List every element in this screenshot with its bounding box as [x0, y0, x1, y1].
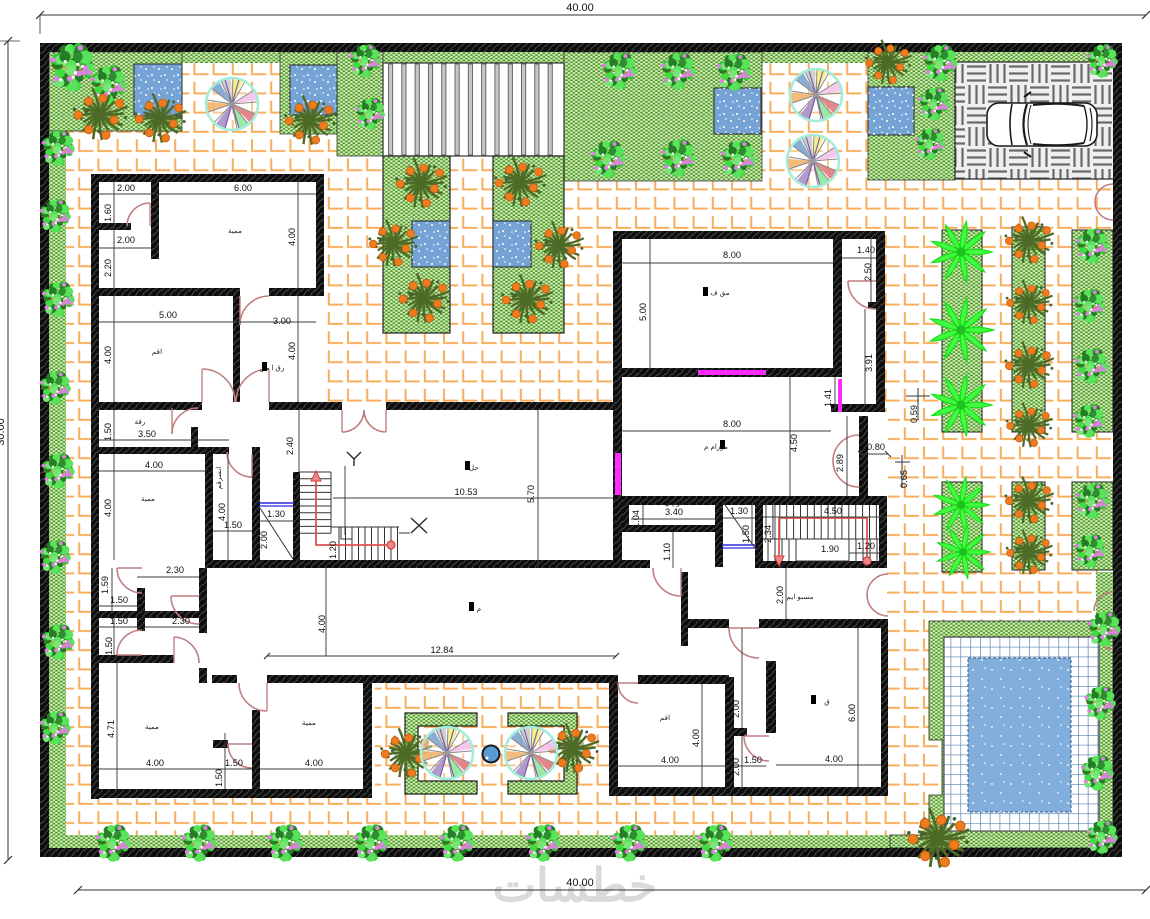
svg-text:0.59: 0.59: [909, 405, 919, 423]
svg-text:2.30: 2.30: [172, 616, 190, 626]
svg-text:حل: حل: [469, 463, 479, 472]
svg-text:4.00: 4.00: [103, 499, 113, 517]
svg-text:4.00: 4.00: [145, 460, 163, 470]
svg-text:8.00: 8.00: [723, 250, 741, 260]
svg-text:2.30: 2.30: [166, 565, 184, 575]
svg-text:ممية: ممية: [302, 718, 316, 727]
svg-text:3.40: 3.40: [665, 507, 683, 517]
svg-text:1.30: 1.30: [267, 509, 285, 519]
svg-text:4.00: 4.00: [305, 758, 323, 768]
svg-text:2.00: 2.00: [117, 235, 135, 245]
svg-text:1.59: 1.59: [100, 576, 110, 594]
svg-text:1.50: 1.50: [741, 525, 751, 543]
svg-text:1.40: 1.40: [857, 245, 875, 255]
svg-text:40.00: 40.00: [566, 2, 594, 14]
svg-text:4.71: 4.71: [106, 720, 116, 738]
svg-text:0.65: 0.65: [899, 470, 909, 488]
svg-text:1.50: 1.50: [225, 758, 243, 768]
svg-text:مسبو ايم: مسبو ايم: [787, 592, 814, 601]
svg-text:1.41: 1.41: [823, 389, 833, 407]
svg-text:8.00: 8.00: [723, 419, 741, 429]
svg-text:1.90: 1.90: [821, 544, 839, 554]
svg-text:6.00: 6.00: [847, 704, 857, 722]
svg-text:ممية: ممية: [228, 226, 242, 235]
svg-text:4.00: 4.00: [691, 729, 701, 747]
svg-text:2.34: 2.34: [763, 525, 773, 543]
svg-text:1.20: 1.20: [328, 541, 338, 559]
svg-text:1.50: 1.50: [110, 616, 128, 626]
svg-text:3.50: 3.50: [138, 429, 156, 439]
svg-text:4.50: 4.50: [789, 434, 799, 452]
svg-text:2.00: 2.00: [731, 758, 741, 776]
svg-text:12.84: 12.84: [431, 645, 454, 655]
svg-text:2.00: 2.00: [259, 531, 269, 549]
svg-text:1.60: 1.60: [103, 204, 113, 222]
svg-text:40.00: 40.00: [566, 877, 594, 889]
svg-text:2.00: 2.00: [731, 700, 741, 718]
svg-text:4.50: 4.50: [824, 506, 842, 516]
svg-text:4.00: 4.00: [287, 342, 297, 360]
svg-text:5.00: 5.00: [638, 303, 648, 321]
svg-text:2.00: 2.00: [775, 586, 785, 604]
svg-text:1.50: 1.50: [214, 769, 224, 787]
svg-text:3.00: 3.00: [273, 316, 291, 326]
svg-text:5.00: 5.00: [159, 310, 177, 320]
svg-text:2.50: 2.50: [863, 263, 873, 281]
svg-text:0.80: 0.80: [867, 442, 885, 452]
svg-text:دقرم ي: دقرم ي: [665, 498, 688, 507]
svg-text:4.00: 4.00: [217, 503, 227, 521]
svg-text:4.00: 4.00: [661, 755, 679, 765]
svg-text:ممية: ممية: [141, 494, 155, 503]
svg-text:4.00: 4.00: [103, 346, 113, 364]
svg-text:2.40: 2.40: [285, 437, 295, 455]
svg-text:1.50: 1.50: [103, 423, 113, 441]
svg-text:2.00: 2.00: [117, 183, 135, 193]
svg-text:1.04: 1.04: [631, 510, 641, 528]
svg-text:اقم: اقم: [152, 347, 162, 356]
svg-text:1.30: 1.30: [730, 506, 748, 516]
svg-text:م: م: [477, 604, 481, 613]
svg-text:1.50: 1.50: [104, 637, 114, 655]
svg-text:ابسرقم: ابسرقم: [214, 467, 223, 490]
svg-text:رقة: رقة: [135, 417, 146, 426]
svg-text:4.00: 4.00: [317, 615, 327, 633]
svg-text:1.50: 1.50: [744, 755, 762, 765]
svg-text:4.00: 4.00: [287, 228, 297, 246]
svg-text:4.00: 4.00: [146, 758, 164, 768]
svg-text:ق: ق: [824, 697, 830, 706]
svg-text:6.00: 6.00: [234, 183, 252, 193]
svg-text:1.10: 1.10: [662, 543, 672, 561]
svg-text:1.50: 1.50: [110, 595, 128, 605]
svg-text:ممية: ممية: [145, 722, 159, 731]
svg-text:مق ف: مق ف: [710, 288, 729, 297]
svg-text:2.89: 2.89: [835, 454, 845, 472]
svg-text:3.91: 3.91: [864, 354, 874, 372]
svg-text:1.20: 1.20: [857, 541, 875, 551]
svg-text:5.70: 5.70: [526, 485, 536, 503]
svg-text:10.53: 10.53: [455, 487, 478, 497]
svg-text:2.20: 2.20: [103, 259, 113, 277]
svg-text:4.00: 4.00: [825, 754, 843, 764]
svg-text:اقم: اقم: [660, 713, 670, 722]
svg-text:30.00: 30.00: [0, 418, 7, 446]
